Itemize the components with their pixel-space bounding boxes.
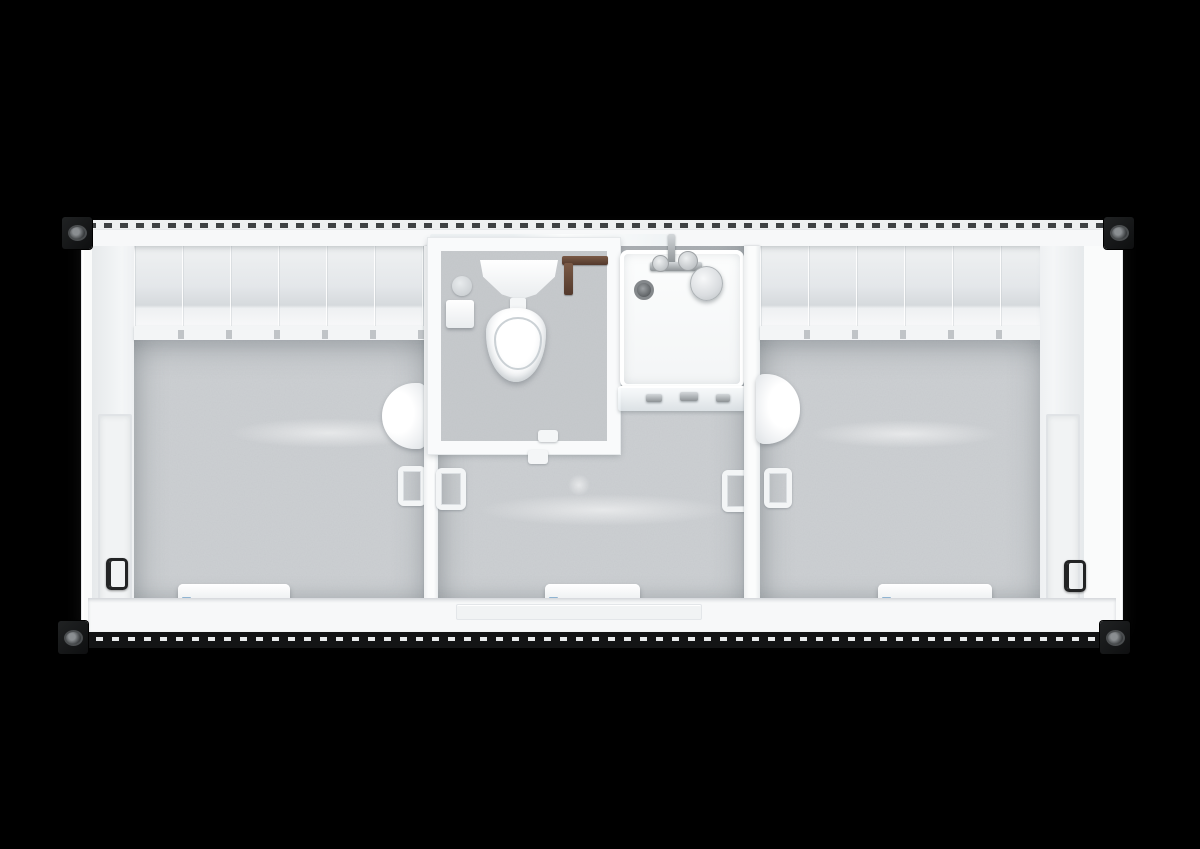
- west-door-handle: [106, 558, 128, 590]
- corner-casting-top-left: [62, 217, 92, 249]
- mixer-valve-left: [652, 255, 669, 272]
- wc-wall-knob: [452, 276, 472, 296]
- container-unit: [62, 218, 1140, 652]
- shower-head: [690, 266, 723, 301]
- right-room-door-handle: [764, 468, 792, 508]
- left-room-wall-paneling: [134, 246, 424, 327]
- corner-casting-bottom-right: [1100, 621, 1130, 654]
- floor-speckle-texture: [760, 340, 1040, 598]
- right-coat-hook-rail: [760, 326, 1040, 340]
- water-supply-pipe-vertical: [564, 263, 573, 295]
- bottom-corrugated-rail: [80, 632, 1122, 648]
- casting-hole-icon: [64, 630, 83, 646]
- casting-hole-icon: [1110, 225, 1129, 241]
- mixer-valve-right: [678, 251, 698, 271]
- ceiling-light-spot: [568, 474, 590, 496]
- screen-clamp: [680, 392, 698, 401]
- entry-threshold: [456, 604, 702, 620]
- corner-casting-top-right: [1104, 217, 1134, 249]
- toilet-roll-holder: [446, 300, 474, 328]
- left-room-door-handle: [398, 466, 426, 506]
- casting-hole-icon: [1106, 630, 1125, 646]
- wc-door-handle-inner: [528, 450, 548, 464]
- render-canvas: [0, 0, 1200, 849]
- vestibule-left-door-handle: [436, 468, 466, 510]
- screen-clamp: [716, 394, 730, 402]
- floor-sheen: [478, 494, 728, 526]
- shower-glass-screen: [618, 386, 746, 411]
- shower-riser-pipe: [668, 234, 675, 264]
- wc-door-handle-outer: [538, 430, 558, 442]
- left-room-floor: [134, 340, 424, 598]
- shower-drain: [634, 280, 654, 300]
- casting-hole-icon: [68, 225, 87, 241]
- left-coat-hook-rail: [134, 326, 424, 340]
- east-door-handle: [1064, 560, 1086, 592]
- toilet-seat-ring: [494, 317, 541, 370]
- right-room-wall-paneling: [760, 246, 1040, 327]
- right-room-floor: [760, 340, 1040, 598]
- floor-sheen: [810, 420, 1000, 448]
- floor-speckle-texture: [134, 340, 424, 598]
- corner-casting-bottom-left: [58, 621, 88, 654]
- screen-clamp: [646, 394, 662, 402]
